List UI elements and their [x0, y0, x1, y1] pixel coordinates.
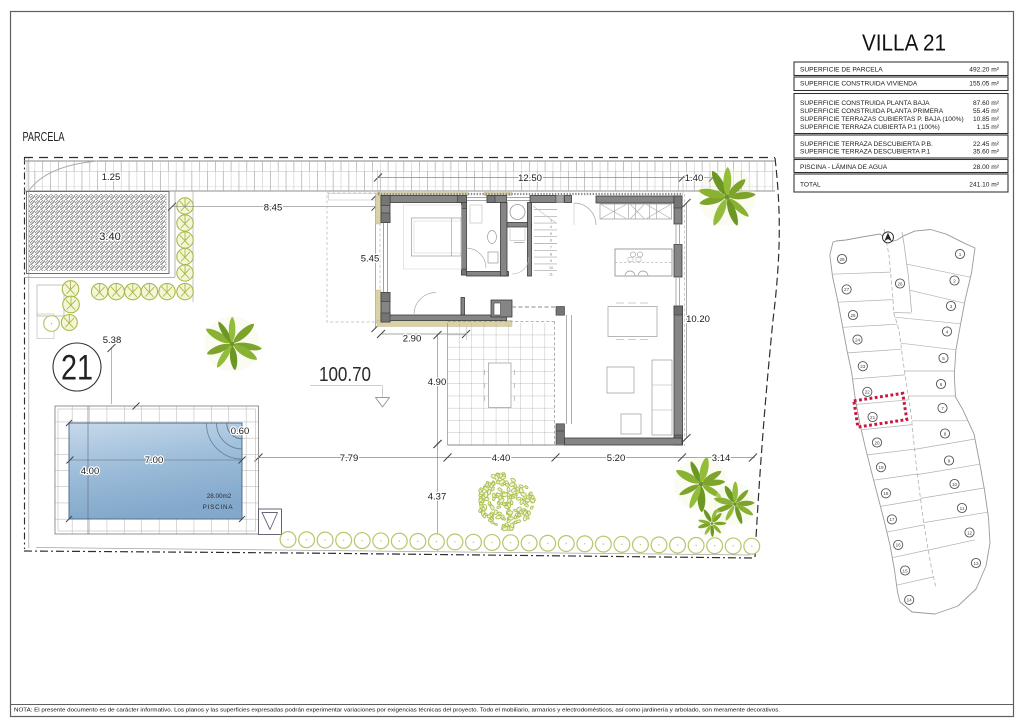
svg-text:9: 9 — [948, 458, 951, 463]
svg-text:10: 10 — [549, 266, 553, 270]
svg-text:7.00: 7.00 — [145, 455, 164, 466]
svg-text:26: 26 — [897, 281, 903, 286]
svg-text:12: 12 — [967, 530, 973, 535]
svg-text:SUPERFICIE DE PARCELA: SUPERFICIE DE PARCELA — [800, 67, 883, 74]
svg-text:SUPERFICIE CONSTRUIDA PLANTA P: SUPERFICIE CONSTRUIDA PLANTA PRIMERA — [800, 108, 944, 115]
svg-text:4.37: 4.37 — [428, 492, 447, 503]
svg-text:6: 6 — [940, 382, 943, 387]
svg-text:12.50: 12.50 — [518, 173, 542, 184]
svg-text:21: 21 — [61, 349, 93, 388]
svg-text:5.20: 5.20 — [607, 453, 626, 464]
svg-text:1.25: 1.25 — [102, 172, 121, 183]
svg-text:23: 23 — [860, 364, 866, 369]
svg-text:15: 15 — [903, 568, 909, 573]
svg-text:17: 17 — [889, 517, 895, 522]
svg-text:4: 4 — [550, 225, 552, 229]
svg-text:SUPERFICIE CONSTRUIDA PLANTA B: SUPERFICIE CONSTRUIDA PLANTA BAJA — [800, 100, 930, 107]
svg-text:22.45 m²: 22.45 m² — [973, 141, 1000, 148]
svg-text:9: 9 — [550, 259, 552, 263]
svg-text:100.70: 100.70 — [319, 364, 371, 386]
svg-text:SUPERFICIE CONSTRUIDA VIVIENDA: SUPERFICIE CONSTRUIDA VIVIENDA — [800, 81, 918, 88]
svg-text:241.10 m²: 241.10 m² — [969, 182, 999, 189]
svg-text:SUPERFICIE TERRAZAS CUBIERTAS: SUPERFICIE TERRAZAS CUBIERTAS P. BAJA (1… — [800, 116, 964, 123]
svg-text:PISCINA: PISCINA — [203, 504, 234, 511]
svg-text:5.38: 5.38 — [103, 335, 122, 346]
svg-text:8: 8 — [944, 431, 947, 436]
svg-text:14: 14 — [907, 598, 913, 603]
svg-text:55.45 m²: 55.45 m² — [973, 108, 1000, 115]
svg-text:27: 27 — [844, 287, 850, 292]
svg-text:35.60 m²: 35.60 m² — [973, 149, 1000, 156]
svg-text:7: 7 — [550, 246, 552, 250]
svg-text:28: 28 — [839, 257, 845, 262]
svg-text:4.40: 4.40 — [492, 453, 511, 464]
svg-text:10: 10 — [952, 482, 958, 487]
svg-text:25: 25 — [850, 313, 856, 318]
svg-text:7.79: 7.79 — [340, 453, 359, 464]
svg-text:VILLA 21: VILLA 21 — [862, 30, 946, 56]
svg-text:492.20 m²: 492.20 m² — [969, 67, 999, 74]
svg-text:PISCINA - LÁMINA DE AGUA: PISCINA - LÁMINA DE AGUA — [800, 162, 888, 171]
svg-text:NOTA: El presente documento es: NOTA: El presente documento es de caráct… — [14, 708, 780, 714]
svg-text:28.00m2: 28.00m2 — [207, 493, 232, 500]
svg-text:8.45: 8.45 — [264, 202, 283, 213]
svg-text:SUPERFICIE TERRAZA CUBIERTA P.: SUPERFICIE TERRAZA CUBIERTA P.1 (100%) — [800, 124, 940, 131]
svg-text:18: 18 — [883, 491, 889, 496]
svg-text:SUPERFICIE TERRAZA DESCUBIERTA: SUPERFICIE TERRAZA DESCUBIERTA P.B. — [800, 141, 933, 148]
svg-text:8: 8 — [550, 252, 552, 256]
svg-text:11: 11 — [960, 506, 965, 511]
svg-text:SUPERFICIE TERRAZA DESCUBIERTA: SUPERFICIE TERRAZA DESCUBIERTA P.1 — [800, 149, 931, 156]
svg-text:24: 24 — [855, 337, 861, 342]
svg-text:1.40: 1.40 — [685, 173, 704, 184]
svg-text:21: 21 — [870, 415, 876, 420]
svg-text:2: 2 — [953, 278, 956, 283]
svg-text:5: 5 — [942, 356, 945, 361]
svg-text:11: 11 — [549, 273, 553, 277]
svg-text:3.40: 3.40 — [99, 231, 120, 243]
svg-text:10.20: 10.20 — [686, 314, 710, 325]
svg-text:6: 6 — [550, 239, 552, 243]
svg-text:4.90: 4.90 — [428, 377, 447, 388]
svg-text:22: 22 — [865, 390, 871, 395]
svg-text:155.05 m²: 155.05 m² — [969, 81, 999, 88]
svg-text:7: 7 — [941, 406, 944, 411]
svg-text:13: 13 — [973, 561, 979, 566]
svg-text:87.60 m²: 87.60 m² — [973, 100, 1000, 107]
svg-text:TOTAL: TOTAL — [800, 182, 821, 189]
svg-text:10.85 m²: 10.85 m² — [973, 116, 1000, 123]
svg-text:16: 16 — [896, 543, 902, 548]
svg-text:1.15 m²: 1.15 m² — [977, 124, 1000, 131]
svg-text:0.60: 0.60 — [231, 426, 250, 437]
svg-text:1: 1 — [959, 252, 962, 257]
svg-text:5.45: 5.45 — [361, 254, 380, 265]
svg-text:28.00 m²: 28.00 m² — [973, 164, 1000, 171]
svg-text:4.00: 4.00 — [81, 466, 100, 477]
svg-text:PARCELA: PARCELA — [23, 130, 65, 144]
svg-text:20: 20 — [874, 440, 880, 445]
svg-text:3: 3 — [950, 304, 953, 309]
svg-text:5: 5 — [550, 232, 552, 236]
svg-text:4: 4 — [946, 329, 949, 334]
svg-text:19: 19 — [878, 465, 884, 470]
svg-text:2.90: 2.90 — [403, 334, 422, 345]
